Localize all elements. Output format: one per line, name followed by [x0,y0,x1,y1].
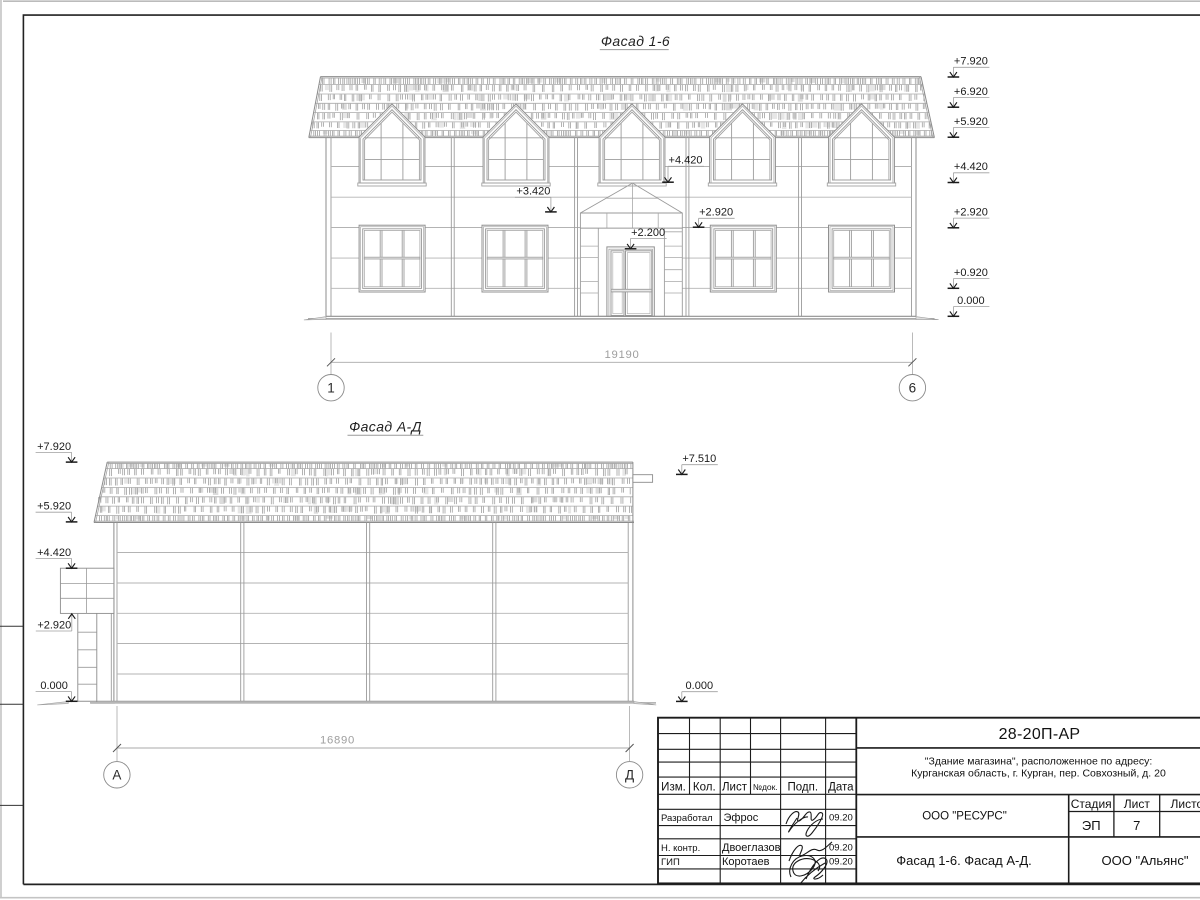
svg-text:19190: 19190 [605,349,640,361]
svg-text:Изм.: Изм. [661,782,686,794]
svg-text:+5.920: +5.920 [37,501,71,513]
svg-text:+4.420: +4.420 [669,155,703,167]
svg-text:0.000: 0.000 [40,680,68,692]
svg-text:Двоеглазов: Двоеглазов [722,842,781,854]
svg-text:0.000: 0.000 [957,295,985,307]
svg-text:+0.920: +0.920 [954,267,988,279]
svg-text:+3.420: +3.420 [516,186,550,198]
svg-text:+6.920: +6.920 [954,86,988,98]
svg-text:09.20: 09.20 [829,813,853,824]
svg-text:Лист: Лист [722,782,748,794]
svg-text:ООО "РЕСУРС": ООО "РЕСУРС" [922,811,1007,823]
svg-text:ЭП: ЭП [1082,818,1101,833]
svg-text:28-20П-АР: 28-20П-АР [999,726,1081,743]
svg-text:ООО "Альянс": ООО "Альянс" [1102,853,1189,868]
svg-text:Подп.: Подп. [788,782,819,794]
svg-text:+4.420: +4.420 [37,547,71,559]
svg-text:+2.920: +2.920 [37,619,71,631]
svg-text:А: А [112,768,121,783]
svg-text:Эфрос: Эфрос [724,812,759,824]
svg-text:Стадия: Стадия [1071,797,1112,811]
svg-text:+4.420: +4.420 [954,161,988,173]
svg-text:Н. контр.: Н. контр. [661,843,700,854]
svg-text:Д: Д [625,768,634,783]
svg-text:Лист: Лист [1124,797,1151,811]
svg-text:Фасад 1-6: Фасад 1-6 [601,33,670,49]
svg-text:7: 7 [1133,818,1140,833]
svg-text:16890: 16890 [320,735,355,747]
svg-text:ГИП: ГИП [661,857,680,868]
svg-text:Фасад 1-6. Фасад А-Д.: Фасад 1-6. Фасад А-Д. [896,853,1032,868]
svg-text:Кол.: Кол. [693,782,716,794]
svg-text:Дата: Дата [828,782,854,794]
svg-text:+2.920: +2.920 [699,207,733,219]
svg-text:Коротаев: Коротаев [722,856,770,868]
svg-text:1: 1 [327,381,335,396]
svg-text:+5.920: +5.920 [954,116,988,128]
svg-text:0.000: 0.000 [686,680,714,692]
svg-text:+2.920: +2.920 [954,207,988,219]
svg-text:+2.200: +2.200 [631,227,665,239]
svg-text:Фасад А-Д: Фасад А-Д [349,419,422,435]
svg-text:+7.510: +7.510 [682,453,716,465]
svg-text:+7.920: +7.920 [954,56,988,68]
svg-text:Листов: Листов [1171,797,1200,811]
svg-text:Разработал: Разработал [661,813,713,824]
svg-text:№док.: №док. [753,782,778,792]
svg-text:+7.920: +7.920 [37,441,71,453]
svg-text:09.20: 09.20 [829,857,853,868]
svg-text:"Здание магазина", расположенн: "Здание магазина", расположенное по адре… [925,756,1152,768]
svg-text:6: 6 [909,381,917,396]
svg-text:Курганская область, г. Курган,: Курганская область, г. Курган, пер. Совх… [911,768,1166,780]
svg-text:09.20: 09.20 [829,842,853,853]
